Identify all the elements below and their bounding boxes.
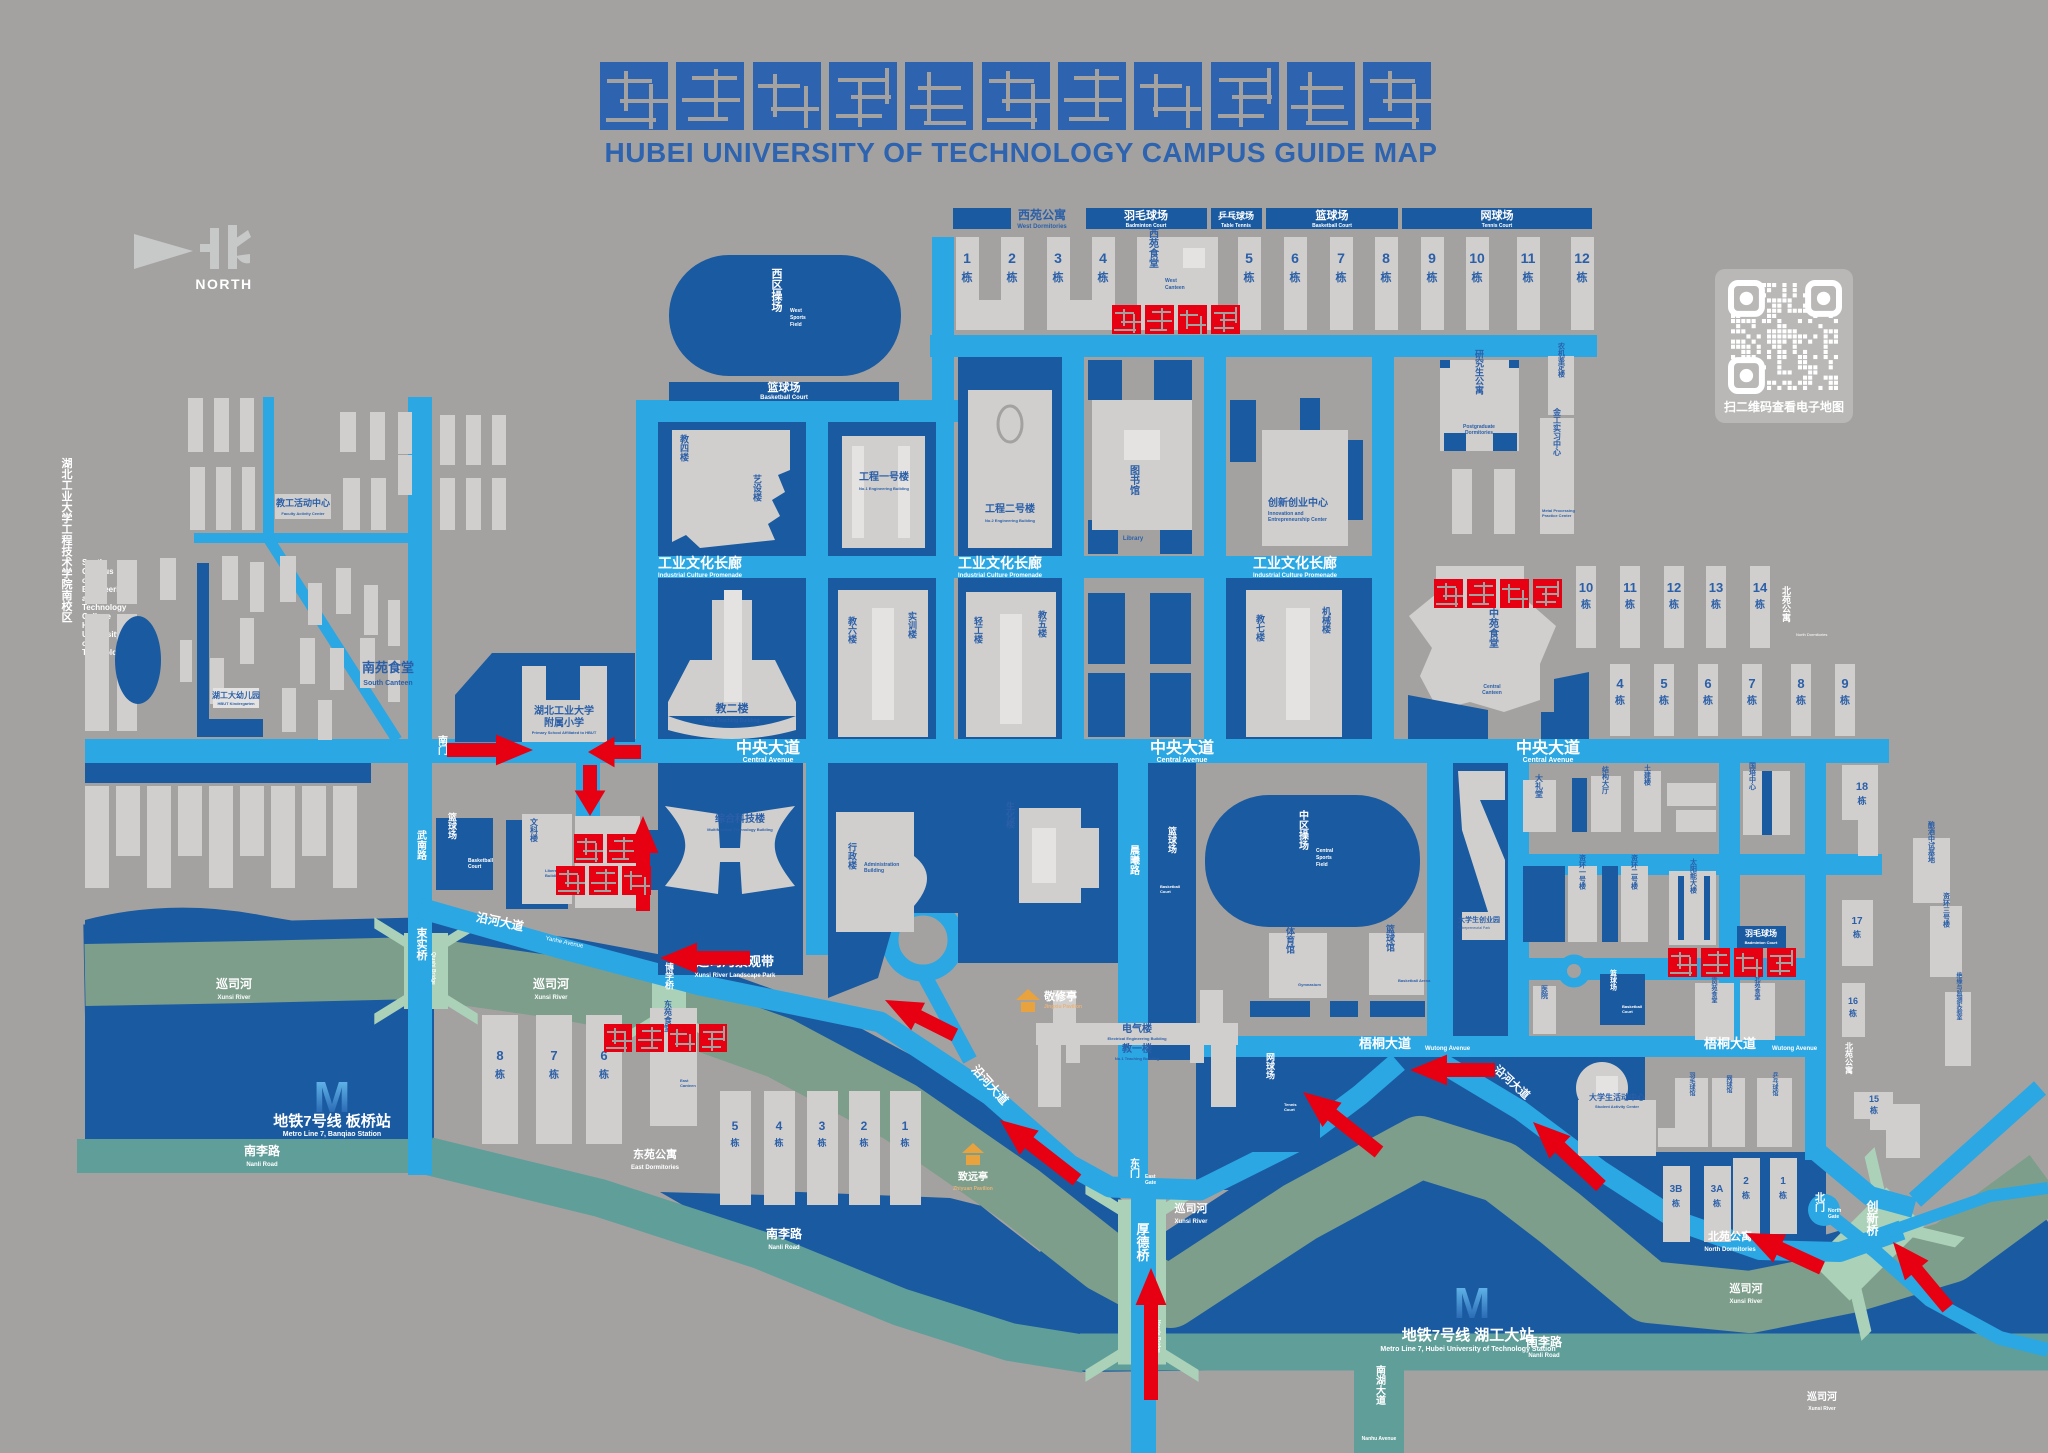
svg-text:8: 8 bbox=[1382, 250, 1390, 266]
svg-text:北苑公寓: 北苑公寓 bbox=[1845, 1041, 1854, 1075]
svg-text:栋: 栋 bbox=[858, 1137, 868, 1148]
svg-text:南门: 南门 bbox=[436, 734, 448, 756]
svg-text:Multifunction Technology Build: Multifunction Technology Building bbox=[707, 827, 773, 832]
svg-text:2: 2 bbox=[1743, 1176, 1749, 1187]
svg-text:West Dormitories: West Dormitories bbox=[1017, 224, 1067, 230]
svg-text:No.2 Engineering Building: No.2 Engineering Building bbox=[985, 518, 1036, 523]
svg-text:Sports: Sports bbox=[790, 315, 806, 321]
svg-text:栋: 栋 bbox=[1778, 1190, 1787, 1200]
svg-text:教一楼: 教一楼 bbox=[1121, 1042, 1152, 1055]
svg-text:Building: Building bbox=[864, 868, 884, 874]
svg-text:Canteen: Canteen bbox=[1482, 690, 1502, 696]
svg-text:Jingxiu Pavilion: Jingxiu Pavilion bbox=[1044, 1004, 1082, 1010]
svg-text:栋: 栋 bbox=[1852, 929, 1861, 939]
svg-text:资环三号楼: 资环三号楼 bbox=[1943, 892, 1951, 929]
svg-text:5: 5 bbox=[732, 1119, 739, 1133]
svg-text:栋: 栋 bbox=[1580, 598, 1591, 611]
svg-text:Wutong Avenue: Wutong Avenue bbox=[1772, 1046, 1818, 1052]
svg-text:Central Avenue: Central Avenue bbox=[1157, 757, 1208, 764]
svg-text:金工实习中心: 金工实习中心 bbox=[1552, 407, 1562, 457]
svg-text:土建楼: 土建楼 bbox=[1643, 764, 1651, 787]
svg-text:NORTH: NORTH bbox=[195, 276, 252, 292]
svg-text:教五楼: 教五楼 bbox=[1037, 609, 1048, 638]
svg-text:巡司河: 巡司河 bbox=[1730, 1281, 1763, 1295]
svg-text:武南路: 武南路 bbox=[415, 829, 427, 861]
svg-text:栋: 栋 bbox=[1839, 694, 1850, 707]
svg-text:Primary School Affiliated to H: Primary School Affiliated to HBUT bbox=[532, 730, 597, 735]
svg-text:Sports: Sports bbox=[1316, 855, 1332, 861]
svg-text:11: 11 bbox=[1521, 250, 1536, 266]
svg-text:Gate: Gate bbox=[1145, 1180, 1156, 1186]
svg-text:巡司河: 巡司河 bbox=[1807, 1390, 1837, 1403]
svg-text:10: 10 bbox=[1579, 580, 1593, 595]
svg-text:Tennis Court: Tennis Court bbox=[1482, 223, 1513, 229]
svg-text:博学桥: 博学桥 bbox=[664, 961, 675, 990]
svg-text:Court: Court bbox=[468, 864, 482, 870]
svg-text:17: 17 bbox=[1851, 916, 1863, 927]
svg-text:电气楼: 电气楼 bbox=[1122, 1022, 1152, 1035]
svg-text:Central Avenue: Central Avenue bbox=[1523, 757, 1574, 764]
svg-text:Field: Field bbox=[1316, 862, 1328, 868]
svg-text:12: 12 bbox=[1574, 250, 1590, 266]
svg-text:栋: 栋 bbox=[1523, 270, 1534, 284]
svg-text:1: 1 bbox=[963, 250, 971, 266]
svg-text:栋: 栋 bbox=[1856, 795, 1866, 806]
svg-text:教工活动中心: 教工活动中心 bbox=[275, 497, 330, 508]
svg-text:Nanhu Avenue: Nanhu Avenue bbox=[1362, 1436, 1397, 1442]
svg-text:医院: 医院 bbox=[1541, 985, 1549, 1000]
svg-text:4: 4 bbox=[1099, 250, 1107, 266]
svg-text:北苑公寓: 北苑公寓 bbox=[1708, 1229, 1752, 1243]
svg-text:2: 2 bbox=[861, 1119, 868, 1133]
svg-text:西区操场: 西区操场 bbox=[770, 268, 783, 313]
svg-text:图书馆: 图书馆 bbox=[1128, 465, 1140, 496]
svg-text:Central: Central bbox=[1316, 848, 1334, 854]
svg-text:Canteen: Canteen bbox=[680, 1083, 696, 1088]
svg-text:大学生活动中心: 大学生活动中心 bbox=[1589, 1092, 1645, 1102]
svg-text:篮球场: 篮球场 bbox=[1167, 825, 1178, 854]
svg-text:栋: 栋 bbox=[1658, 694, 1669, 707]
svg-text:3: 3 bbox=[819, 1119, 826, 1133]
svg-text:Canteen: Canteen bbox=[1165, 285, 1185, 291]
svg-text:轻工楼: 轻工楼 bbox=[973, 615, 983, 644]
svg-text:7: 7 bbox=[550, 1048, 557, 1063]
svg-text:工业文化长廊: 工业文化长廊 bbox=[1253, 555, 1337, 571]
svg-text:教七楼: 教七楼 bbox=[1255, 613, 1266, 642]
svg-text:Dormitories: Dormitories bbox=[1465, 430, 1493, 436]
svg-text:南苑食堂: 南苑食堂 bbox=[362, 660, 414, 675]
svg-text:West: West bbox=[790, 308, 802, 314]
svg-text:生化楼: 生化楼 bbox=[1005, 800, 1015, 829]
svg-text:中区操场: 中区操场 bbox=[1297, 809, 1309, 851]
svg-text:工业文化长廊: 工业文化长廊 bbox=[658, 555, 742, 571]
svg-text:栋: 栋 bbox=[773, 1137, 783, 1148]
svg-text:栋: 栋 bbox=[1244, 270, 1255, 284]
svg-text:羽毛球馆: 羽毛球馆 bbox=[1688, 1071, 1695, 1097]
svg-text:栋: 栋 bbox=[1848, 1008, 1857, 1018]
svg-text:国培中心: 国培中心 bbox=[1749, 761, 1757, 791]
svg-text:网球场: 网球场 bbox=[1265, 1052, 1276, 1080]
svg-text:栋: 栋 bbox=[1668, 598, 1679, 611]
svg-text:9: 9 bbox=[1841, 676, 1848, 691]
svg-text:敬修亭: 敬修亭 bbox=[1043, 989, 1077, 1003]
svg-text:束实桥: 束实桥 bbox=[415, 926, 428, 961]
svg-text:2: 2 bbox=[1008, 250, 1016, 266]
svg-text:行政楼: 行政楼 bbox=[847, 841, 858, 870]
svg-text:栋: 栋 bbox=[1702, 694, 1713, 707]
svg-text:6: 6 bbox=[1704, 676, 1711, 691]
svg-text:栋: 栋 bbox=[1007, 270, 1018, 284]
svg-text:7: 7 bbox=[1748, 676, 1755, 691]
svg-text:Xunsi River: Xunsi River bbox=[1729, 1299, 1763, 1305]
svg-text:西苑公寓: 西苑公寓 bbox=[1018, 207, 1066, 222]
svg-text:3B: 3B bbox=[1670, 1184, 1683, 1195]
svg-text:Wutong Avenue: Wutong Avenue bbox=[1425, 1046, 1471, 1052]
svg-text:Practice Center: Practice Center bbox=[1542, 513, 1572, 518]
svg-text:Xunsi River: Xunsi River bbox=[1808, 1406, 1836, 1412]
svg-text:栋: 栋 bbox=[1712, 1198, 1721, 1208]
svg-text:South Canteen: South Canteen bbox=[363, 680, 412, 687]
svg-text:栋: 栋 bbox=[1746, 694, 1757, 707]
svg-text:中央大道: 中央大道 bbox=[1150, 738, 1214, 757]
svg-text:栋: 栋 bbox=[1869, 1105, 1878, 1115]
svg-text:Library: Library bbox=[1123, 536, 1144, 542]
svg-text:创新桥: 创新桥 bbox=[1865, 1199, 1879, 1237]
svg-text:Industrial Culture Promenade: Industrial Culture Promenade bbox=[958, 573, 1043, 579]
svg-text:栋: 栋 bbox=[729, 1137, 739, 1148]
svg-text:晨曦路: 晨曦路 bbox=[1128, 844, 1140, 876]
svg-text:栋: 栋 bbox=[1671, 1198, 1680, 1208]
svg-text:南李路: 南李路 bbox=[766, 1226, 803, 1241]
svg-text:篮球场: 篮球场 bbox=[767, 380, 801, 394]
svg-text:栋: 栋 bbox=[1795, 694, 1806, 707]
svg-text:Nanli Road: Nanli Road bbox=[768, 1245, 800, 1251]
svg-text:Electrical Engineering Buildin: Electrical Engineering Building bbox=[1107, 1036, 1167, 1041]
svg-text:Metro Line 7, Banqiao Station: Metro Line 7, Banqiao Station bbox=[283, 1131, 381, 1138]
svg-text:羽毛球场: 羽毛球场 bbox=[1124, 208, 1168, 222]
svg-text:大礼堂: 大礼堂 bbox=[1535, 773, 1544, 799]
svg-text:Entrepreneurial Park: Entrepreneurial Park bbox=[1458, 926, 1490, 930]
svg-text:工程二号楼: 工程二号楼 bbox=[985, 502, 1035, 515]
svg-text:West: West bbox=[1165, 278, 1177, 284]
svg-text:HBUT Kindergarten: HBUT Kindergarten bbox=[217, 701, 255, 706]
svg-text:附属小学: 附属小学 bbox=[544, 716, 584, 729]
svg-text:Court: Court bbox=[1284, 1107, 1295, 1112]
svg-text:5: 5 bbox=[1660, 676, 1667, 691]
svg-text:栋: 栋 bbox=[1614, 694, 1625, 707]
svg-text:Nanli Road: Nanli Road bbox=[246, 1162, 278, 1168]
svg-text:北门: 北门 bbox=[1813, 1191, 1825, 1213]
svg-text:研究生公寓: 研究生公寓 bbox=[1474, 349, 1484, 395]
svg-text:东苑公寓: 东苑公寓 bbox=[633, 1147, 677, 1161]
svg-text:Gymnasium: Gymnasium bbox=[1298, 982, 1321, 987]
svg-text:太阳能大楼: 太阳能大楼 bbox=[1689, 858, 1697, 895]
svg-text:羽毛球场: 羽毛球场 bbox=[1745, 928, 1777, 938]
svg-text:4: 4 bbox=[776, 1119, 783, 1133]
svg-text:湖工大幼儿园: 湖工大幼儿园 bbox=[212, 690, 260, 700]
svg-text:3: 3 bbox=[1054, 250, 1062, 266]
svg-text:Xunsi River: Xunsi River bbox=[534, 995, 568, 1001]
svg-text:Student Activity Center: Student Activity Center bbox=[1595, 1104, 1640, 1109]
svg-text:栋: 栋 bbox=[598, 1068, 609, 1081]
svg-text:Basketball Court: Basketball Court bbox=[760, 395, 808, 401]
svg-text:Badminton Court: Badminton Court bbox=[1745, 940, 1778, 945]
svg-text:Xunsi River: Xunsi River bbox=[1174, 1219, 1208, 1225]
svg-text:梧桐大道: 梧桐大道 bbox=[1704, 1036, 1756, 1051]
svg-text:Xunsi River Landscape Park: Xunsi River Landscape Park bbox=[695, 973, 776, 979]
svg-text:地铁7号线 板桥站: 地铁7号线 板桥站 bbox=[273, 1112, 391, 1130]
svg-text:7: 7 bbox=[1337, 250, 1345, 266]
svg-text:16: 16 bbox=[1848, 996, 1858, 1006]
svg-text:中央大道: 中央大道 bbox=[736, 738, 800, 757]
svg-text:资环一号楼: 资环一号楼 bbox=[1579, 854, 1587, 891]
svg-text:栋: 栋 bbox=[962, 270, 973, 284]
svg-text:North Dormitories: North Dormitories bbox=[1704, 1247, 1756, 1253]
svg-text:Field: Field bbox=[790, 322, 802, 328]
svg-text:栋: 栋 bbox=[1577, 270, 1588, 284]
svg-text:栋: 栋 bbox=[1336, 270, 1347, 284]
svg-text:1: 1 bbox=[902, 1119, 909, 1133]
svg-text:栋: 栋 bbox=[816, 1137, 826, 1148]
svg-text:3A: 3A bbox=[1711, 1184, 1724, 1195]
svg-text:Court: Court bbox=[1622, 1009, 1633, 1014]
svg-text:No.2 Teaching Building: No.2 Teaching Building bbox=[704, 718, 759, 724]
svg-text:创新创业中心: 创新创业中心 bbox=[1267, 496, 1328, 509]
svg-text:11: 11 bbox=[1623, 580, 1637, 595]
svg-text:Basketball Court: Basketball Court bbox=[1312, 223, 1352, 229]
svg-text:湖北工业大学: 湖北工业大学 bbox=[534, 704, 594, 717]
svg-text:地铁7号线 湖工大站: 地铁7号线 湖工大站 bbox=[1402, 1326, 1535, 1344]
svg-text:栋: 栋 bbox=[1741, 1190, 1750, 1200]
svg-text:栋: 栋 bbox=[1381, 270, 1392, 284]
svg-text:资环二号楼: 资环二号楼 bbox=[1631, 854, 1639, 891]
svg-text:Table Tennis: Table Tennis bbox=[1221, 223, 1251, 229]
svg-text:梧桐大道: 梧桐大道 bbox=[1359, 1036, 1411, 1051]
svg-text:湖北工业大学工程技术学院南校区: 湖北工业大学工程技术学院南校区 bbox=[60, 456, 74, 623]
svg-text:北苑公寓: 北苑公寓 bbox=[1781, 585, 1791, 623]
svg-text:M: M bbox=[1454, 1279, 1491, 1328]
svg-text:栋: 栋 bbox=[1472, 270, 1483, 284]
svg-text:栋: 栋 bbox=[1710, 598, 1721, 611]
svg-text:Zhiyuan Pavilion: Zhiyuan Pavilion bbox=[953, 1186, 993, 1192]
svg-text:Industrial Culture Promenade: Industrial Culture Promenade bbox=[1253, 573, 1338, 579]
svg-text:14: 14 bbox=[1753, 580, 1768, 595]
svg-text:网球馆: 网球馆 bbox=[1725, 1074, 1732, 1094]
svg-text:栋: 栋 bbox=[548, 1068, 559, 1081]
svg-text:13: 13 bbox=[1709, 580, 1723, 595]
svg-text:Industrial Culture Promenade: Industrial Culture Promenade bbox=[658, 573, 743, 579]
svg-text:栋: 栋 bbox=[1053, 270, 1064, 284]
svg-text:大学生创业园: 大学生创业园 bbox=[1458, 915, 1500, 924]
svg-text:乒乓球馆: 乒乓球馆 bbox=[1771, 1071, 1778, 1097]
svg-text:12: 12 bbox=[1667, 580, 1681, 595]
svg-text:栋: 栋 bbox=[1427, 270, 1438, 284]
svg-text:Nanli Road: Nanli Road bbox=[1528, 1353, 1560, 1359]
svg-text:18: 18 bbox=[1856, 781, 1868, 793]
svg-text:Central Avenue: Central Avenue bbox=[743, 757, 794, 764]
svg-text:5: 5 bbox=[1245, 250, 1253, 266]
svg-text:15: 15 bbox=[1869, 1094, 1879, 1104]
svg-text:致远亭: 致远亭 bbox=[958, 1170, 988, 1183]
svg-text:HUBEI UNIVERSITY OF TECHNOLOGY: HUBEI UNIVERSITY OF TECHNOLOGY CAMPUS GU… bbox=[605, 137, 1438, 168]
svg-text:教二楼: 教二楼 bbox=[715, 701, 749, 715]
svg-text:综合科技楼: 综合科技楼 bbox=[715, 812, 765, 825]
svg-text:巡司河: 巡司河 bbox=[216, 976, 252, 991]
svg-text:Basketball Arena: Basketball Arena bbox=[1398, 978, 1431, 983]
svg-text:中央大道: 中央大道 bbox=[1516, 738, 1580, 757]
svg-text:文科楼: 文科楼 bbox=[529, 817, 539, 843]
svg-text:巡司河: 巡司河 bbox=[533, 976, 569, 991]
svg-text:巡司河: 巡司河 bbox=[1175, 1201, 1208, 1215]
svg-text:6: 6 bbox=[1291, 250, 1299, 266]
svg-text:厚德桥: 厚德桥 bbox=[1135, 1222, 1150, 1263]
svg-text:10: 10 bbox=[1469, 250, 1485, 266]
svg-text:栋: 栋 bbox=[899, 1137, 909, 1148]
svg-text:1: 1 bbox=[1780, 1176, 1786, 1187]
svg-text:乒乓球场: 乒乓球场 bbox=[1218, 210, 1254, 221]
svg-text:栋: 栋 bbox=[1754, 598, 1765, 611]
svg-text:No.1 Teaching Building: No.1 Teaching Building bbox=[1115, 1056, 1160, 1061]
svg-text:网球场: 网球场 bbox=[1481, 208, 1514, 222]
svg-text:Gate: Gate bbox=[1828, 1214, 1839, 1220]
svg-text:机械楼: 机械楼 bbox=[1321, 605, 1331, 634]
svg-text:Court: Court bbox=[1160, 889, 1171, 894]
svg-text:篮球场: 篮球场 bbox=[447, 811, 458, 840]
svg-text:篮球场: 篮球场 bbox=[1315, 208, 1349, 222]
svg-text:教六楼: 教六楼 bbox=[847, 615, 858, 644]
svg-text:扫二维码查看电子地图: 扫二维码查看电子地图 bbox=[1724, 399, 1844, 414]
svg-text:体育馆: 体育馆 bbox=[1285, 925, 1296, 954]
svg-text:栋: 栋 bbox=[1290, 270, 1301, 284]
svg-text:8: 8 bbox=[1797, 676, 1804, 691]
svg-text:9: 9 bbox=[1428, 250, 1436, 266]
svg-text:东门: 东门 bbox=[1128, 1157, 1140, 1179]
svg-text:Qiushi Bridge: Qiushi Bridge bbox=[430, 952, 436, 985]
svg-text:Entrepreneurship Center: Entrepreneurship Center bbox=[1268, 517, 1327, 523]
svg-text:No.1 Engineering Building: No.1 Engineering Building bbox=[859, 486, 910, 491]
svg-text:Faculty Activity Center: Faculty Activity Center bbox=[281, 511, 325, 516]
svg-text:Xunsi River: Xunsi River bbox=[217, 995, 251, 1001]
svg-text:栋: 栋 bbox=[1098, 270, 1109, 284]
svg-text:南湖大道: 南湖大道 bbox=[1374, 1364, 1386, 1406]
svg-text:North Dormitories: North Dormitories bbox=[1796, 632, 1827, 637]
svg-text:实训楼: 实训楼 bbox=[907, 610, 917, 639]
svg-text:工业文化长廊: 工业文化长廊 bbox=[958, 555, 1042, 571]
svg-text:栋: 栋 bbox=[494, 1068, 505, 1081]
svg-text:教四楼: 教四楼 bbox=[679, 433, 690, 462]
svg-text:南李路: 南李路 bbox=[244, 1143, 281, 1158]
svg-text:工程一号楼: 工程一号楼 bbox=[859, 470, 909, 483]
svg-text:绝缘与监测实验室: 绝缘与监测实验室 bbox=[1955, 971, 1962, 1021]
svg-text:艺设楼: 艺设楼 bbox=[752, 473, 763, 502]
svg-text:栋: 栋 bbox=[1624, 598, 1635, 611]
svg-text:8: 8 bbox=[496, 1048, 503, 1063]
svg-text:4: 4 bbox=[1616, 676, 1624, 691]
svg-text:East Dormitories: East Dormitories bbox=[631, 1165, 680, 1171]
svg-text:篮球馆: 篮球馆 bbox=[1385, 923, 1396, 952]
svg-text:Metro Line 7, Hubei Universit: Metro Line 7, Hubei University of Techno… bbox=[1380, 1346, 1555, 1353]
